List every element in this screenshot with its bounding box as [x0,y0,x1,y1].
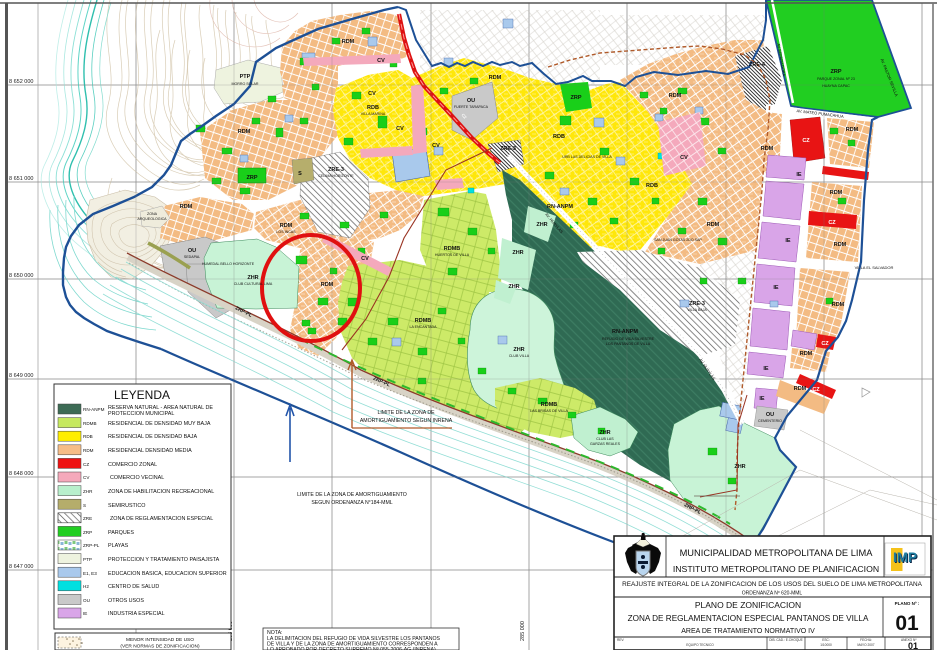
svg-text:ZHR: ZHR [513,347,524,353]
svg-text:AMORTIGUAMIENTO SEGUN INRENA: AMORTIGUAMIENTO SEGUN INRENA [360,418,453,424]
svg-text:ZRP-PL: ZRP-PL [83,543,100,548]
svg-text:RESIDENCIAL DE DENSIDAD MUY BA: RESIDENCIAL DE DENSIDAD MUY BAJA [108,421,211,427]
svg-text:PTP: PTP [240,74,251,80]
svg-text:OU: OU [766,412,774,418]
svg-text:CV: CV [83,475,90,480]
svg-text:ZRE: ZRE [83,516,92,521]
svg-text:CV: CV [396,126,404,132]
svg-text:CEMENTERIO: CEMENTERIO [758,419,782,423]
svg-text:RDMB: RDMB [83,421,97,426]
svg-text:SEMIRUSTICO: SEMIRUSTICO [108,503,145,509]
svg-text:8 652 000: 8 652 000 [9,79,33,85]
svg-text:DIB. CAD.: E.CHOQUE: DIB. CAD.: E.CHOQUE [769,638,802,642]
svg-text:INSTITUTO METROPOLITANO DE PLA: INSTITUTO METROPOLITANO DE PLANIFICACION [673,564,879,574]
svg-text:01: 01 [895,612,919,635]
svg-text:MUNICIPALIDAD METROPOLITANA DE: MUNICIPALIDAD METROPOLITANA DE LIMA [680,548,874,558]
svg-text:CENTRO DE SALUD: CENTRO DE SALUD [108,584,159,590]
svg-text:CZ: CZ [828,220,836,226]
svg-text:8 650 000: 8 650 000 [9,273,33,279]
svg-text:ZRP: ZRP [83,530,92,535]
svg-text:PARQUES: PARQUES [108,530,134,536]
svg-text:RDM: RDM [321,282,334,288]
svg-text:CZ: CZ [812,387,820,393]
svg-text:AREA DE TRATAMIENTO NORMATIV: AREA DE TRATAMIENTO NORMATIVO IV [681,628,815,635]
svg-text:RDMB: RDMB [444,246,461,252]
svg-text:CLUB VILLA: CLUB VILLA [509,354,530,358]
svg-text:RDB: RDB [83,434,93,439]
svg-text:IE: IE [773,285,779,291]
svg-text:PLANO Nº :: PLANO Nº : [895,601,920,606]
svg-text:SEGUN ORDENANZA N°184-MML: SEGUN ORDENANZA N°184-MML [311,500,392,506]
svg-text:RDM: RDM [761,146,774,152]
svg-text:RESIDENCIAL DE DENSIDAD BAJA: RESIDENCIAL DE DENSIDAD BAJA [108,434,197,440]
svg-text:RDM: RDM [280,223,293,229]
svg-text:IE: IE [763,366,769,372]
svg-text:IMP: IMP [893,550,917,565]
svg-text:RDB: RDB [646,183,658,189]
svg-text:MAYO 2007: MAYO 2007 [857,643,874,647]
svg-text:VILLA MARINA: VILLA MARINA [361,112,386,116]
svg-text:CELIMA HORIZONTE: CELIMA HORIZONTE [318,174,354,178]
svg-text:CZ: CZ [821,341,829,347]
svg-text:RDM: RDM [834,242,847,248]
svg-text:CV: CV [377,58,385,64]
svg-text:S: S [298,171,302,177]
svg-text:GARZAS REALES: GARZAS REALES [590,442,621,446]
svg-text:E1, E3: E1, E3 [83,571,97,576]
svg-text:RDB: RDB [553,134,565,140]
svg-text:LAS BRISAS DE VILLA: LAS BRISAS DE VILLA [530,409,568,413]
svg-text:RDM: RDM [846,127,859,133]
svg-text:FECHA:: FECHA: [860,638,872,642]
svg-text:EDUCACION BASICA, EDUCACION SU: EDUCACION BASICA, EDUCACION SUPERIOR [108,571,227,577]
svg-text:COMERCIO ZONAL: COMERCIO ZONAL [108,462,157,468]
svg-text:8 648 000: 8 648 000 [9,471,33,477]
svg-text:ZONA DE REGLAMENTACION ESPECIA: ZONA DE REGLAMENTACION ESPECIAL [110,516,213,522]
svg-text:RN-ANPM: RN-ANPM [83,407,105,412]
svg-text:ZRP: ZRP [831,69,842,75]
svg-text:ZONA: ZONA [147,212,158,216]
svg-text:ZHR: ZHR [734,464,745,470]
svg-text:ZHR: ZHR [83,489,93,494]
svg-text:EQUIPO TECNICO: EQUIPO TECNICO [686,643,714,647]
svg-text:HUERTOS DE VILLA: HUERTOS DE VILLA [435,253,470,257]
svg-text:ZRE-3: ZRE-3 [500,146,516,152]
svg-text:RN-ANPM: RN-ANPM [612,329,638,335]
svg-text:01: 01 [908,641,918,650]
svg-text:RDB: RDB [367,105,379,111]
svg-text:LIMITE DE LA ZONA DE: LIMITE DE LA ZONA DE [377,410,435,416]
svg-text:ZRE-4: ZRE-4 [749,62,766,68]
svg-text:RDM: RDM [830,190,843,196]
svg-text:ZHR: ZHR [247,275,258,281]
svg-text:8 651 000: 8 651 000 [9,176,33,182]
svg-text:RDMB: RDMB [541,402,558,408]
svg-text:OTROS USOS: OTROS USOS [108,598,144,604]
svg-text:IE: IE [83,611,87,616]
svg-text:PLAYAS: PLAYAS [108,543,129,549]
svg-text:IE: IE [759,396,765,402]
svg-text:CZ: CZ [802,138,810,144]
svg-text:HUAYNA CAPAC: HUAYNA CAPAC [822,84,850,88]
svg-text:REAJUSTE INTEGRAL DE LA ZO: REAJUSTE INTEGRAL DE LA ZONIFICACION DE … [622,581,923,588]
svg-text:RDM: RDM [800,351,813,357]
svg-text:ARQUEOLOGICA: ARQUEOLOGICA [137,217,167,221]
svg-text:ZHR: ZHR [512,250,523,256]
svg-text:CV: CV [680,155,688,161]
svg-text:ZRE-3: ZRE-3 [328,167,344,173]
svg-text:URB LAS DELICIAS DE VILLA: URB LAS DELICIAS DE VILLA [562,155,612,159]
svg-text:ZRP: ZRP [247,175,258,181]
svg-text:COMERCIO VECINAL: COMERCIO VECINAL [110,475,164,481]
svg-text:8 647 000: 8 647 000 [9,564,33,570]
svg-text:RDM: RDM [669,93,682,99]
svg-text:(VER NORMAS DE ZONIFICACION): (VER NORMAS DE ZONIFICACION) [120,644,200,650]
svg-text:RDM: RDM [794,386,807,392]
svg-text:ZONA DE HABILITACION RECREACIO: ZONA DE HABILITACION RECREACIONAL [108,489,214,495]
svg-text:RDM: RDM [489,75,502,81]
svg-text:RDM: RDM [180,204,193,210]
svg-text:LIMITE DE LA ZONA DE AMORTIGUA: LIMITE DE LA ZONA DE AMORTIGUAMIENTO [297,492,407,498]
svg-text:SEDAPAL: SEDAPAL [184,255,200,259]
svg-text:ZONA DE REGLAMENTACION ESPECIA: ZONA DE REGLAMENTACION ESPECIAL PANTANOS… [628,614,869,623]
svg-text:CLUB LAS: CLUB LAS [596,437,614,441]
svg-text:RN-ANPM: RN-ANPM [547,204,573,210]
svg-text:S: S [83,503,86,508]
svg-text:RDM: RDM [707,222,720,228]
svg-text:RDMB: RDMB [415,318,432,324]
svg-text:VILLA EL SALVADOR: VILLA EL SALVADOR [855,265,894,270]
svg-text:SAN JUAN GOTAS 2DO SAP: SAN JUAN GOTAS 2DO SAP [654,238,702,242]
svg-text:H2: H2 [83,584,89,589]
svg-text:MENOR INTENSIDAD DE USO: MENOR INTENSIDAD DE USO [126,637,194,643]
svg-text:MORRO SOLAR: MORRO SOLAR [232,82,259,86]
svg-text:REFUGIO DE VIDA SILVESTRE: REFUGIO DE VIDA SILVESTRE [602,337,655,341]
svg-text:PROTECCION MUNICIPAL: PROTECCION MUNICIPAL [108,411,174,417]
svg-text:PROTECCION Y TRATAMIENTO PAISA: PROTECCION Y TRATAMIENTO PAISAJISTA [108,557,220,563]
svg-text:1/10000: 1/10000 [820,643,832,647]
svg-text:RDM: RDM [83,448,94,453]
svg-text:RESIDENCIAL DENSIDAD MEDIA: RESIDENCIAL DENSIDAD MEDIA [108,448,192,454]
svg-text:OU: OU [188,248,196,254]
svg-text:285 000: 285 000 [520,621,526,641]
svg-text:INDUSTRIA ESPECIAL: INDUSTRIA ESPECIAL [108,611,165,617]
svg-text:HUMEDAL BELLO HORIZONTE: HUMEDAL BELLO HORIZONTE [202,262,255,266]
svg-text:ESC:: ESC: [822,638,830,642]
svg-text:ZRP: ZRP [571,95,582,101]
svg-text:8 649 000: 8 649 000 [9,373,33,379]
svg-text:LOS PANTANOS DE VILLA: LOS PANTANOS DE VILLA [606,342,651,346]
svg-text:PARQUE ZONAL Nº 23: PARQUE ZONAL Nº 23 [817,77,855,81]
svg-text:PLANO DE ZONIFICACION: PLANO DE ZONIFICACION [695,600,801,610]
svg-text:OU: OU [83,598,90,603]
svg-text:ZHR: ZHR [508,284,519,290]
svg-text:LA ENCANTADA: LA ENCANTADA [409,325,437,329]
svg-text:REV:: REV: [617,638,624,642]
svg-text:VILLA BAJA: VILLA BAJA [687,308,707,312]
svg-text:CV: CV [368,91,376,97]
svg-text:ORDENANZA Nº 620-MML: ORDENANZA Nº 620-MML [742,591,803,597]
svg-text:ZRE-3: ZRE-3 [689,301,705,307]
svg-text:IE: IE [785,238,791,244]
svg-text:ZHR: ZHR [599,430,610,436]
svg-text:FUERTE TARAPACA: FUERTE TARAPACA [454,105,489,109]
svg-text:PTP: PTP [83,557,92,562]
svg-text:RDM: RDM [342,39,355,45]
svg-text:LOS INCAS: LOS INCAS [276,230,296,234]
svg-text:CV: CV [432,143,440,149]
svg-text:RDM: RDM [238,129,251,135]
svg-text:RDM: RDM [832,302,845,308]
svg-text:LEYENDA: LEYENDA [114,388,170,402]
svg-text:ZHR: ZHR [536,222,547,228]
svg-text:IE: IE [796,172,802,178]
svg-text:CV: CV [361,256,369,262]
svg-text:OU: OU [467,98,475,104]
svg-text:CZ: CZ [83,462,89,467]
svg-text:CLUB CULTURAL LIMA: CLUB CULTURAL LIMA [234,282,273,286]
